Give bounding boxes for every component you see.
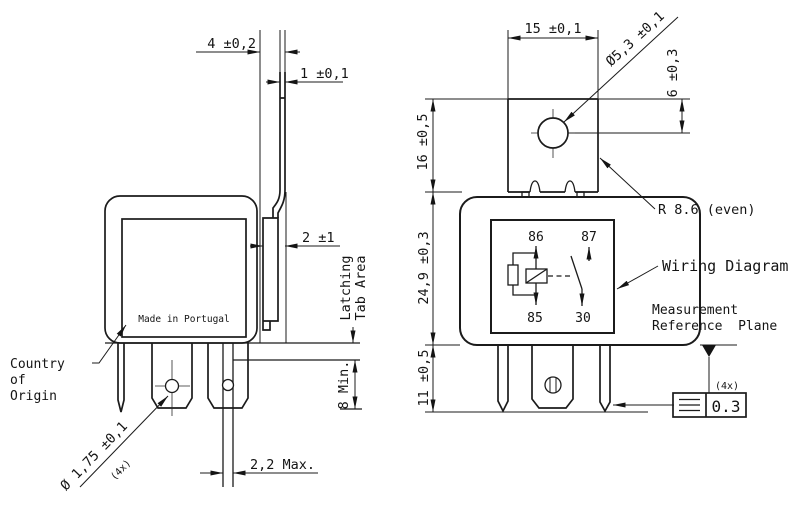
drawing-canvas: Made in Portugal 4 ±0,2 1 ±0,1 [0,0,800,508]
made-in-portugal-marking: Made in Portugal [138,314,230,325]
terminal-hole-1 [166,380,179,393]
dim-terminal-height: 11 ±0,5 [416,345,433,412]
terminal-85-label: 85 [527,311,543,326]
center-blade-hole [545,377,561,393]
datum-qty-label: (4x) [715,381,739,392]
measurement-plane-label-line2: Reference Plane [652,319,777,334]
dim-2-label: 2 ±1 [302,230,335,246]
relay-technical-drawing: Made in Portugal 4 ±0,2 1 ±0,1 [0,0,800,508]
dim-1-label: 1 ±0,1 [300,66,349,82]
dim-16-label: 16 ±0,5 [415,114,431,171]
wiring-diagram-label: Wiring Diagram [662,257,788,275]
dim-22max-label: 2,2 Max. [250,457,315,473]
measurement-plane-label-line1: Measurement [652,303,738,318]
terminal-87-label: 87 [581,230,597,245]
dim-6-label: 6 ±0,3 [665,49,681,98]
dim-8min-label: 8 Min. [336,361,352,410]
terminal-hole-2 [223,380,234,391]
dim-15-label: 15 ±0,1 [525,21,582,37]
latching-tab-area-label-line2: Tab Area [353,255,369,320]
latching-tab-area-label-line1: Latching [338,255,354,320]
country-callout-line3: Origin [10,389,57,404]
country-callout-line1: Country [10,357,65,372]
country-callout-line2: of [10,373,26,388]
dim-4-label: 4 ±0,2 [207,36,256,52]
datum-tolerance-value: 0.3 [712,397,741,416]
dim-249-label: 24,9 ±0,3 [416,231,432,304]
resistor-symbol [508,265,518,285]
bracket-mounting-hole [538,118,568,148]
terminal-86-label: 86 [528,230,544,245]
latching-tab [263,218,278,330]
dim-11-label: 11 ±0,5 [416,350,432,407]
radius-label: R 8.6 (even) [658,202,756,218]
terminal-30-label: 30 [575,311,591,326]
